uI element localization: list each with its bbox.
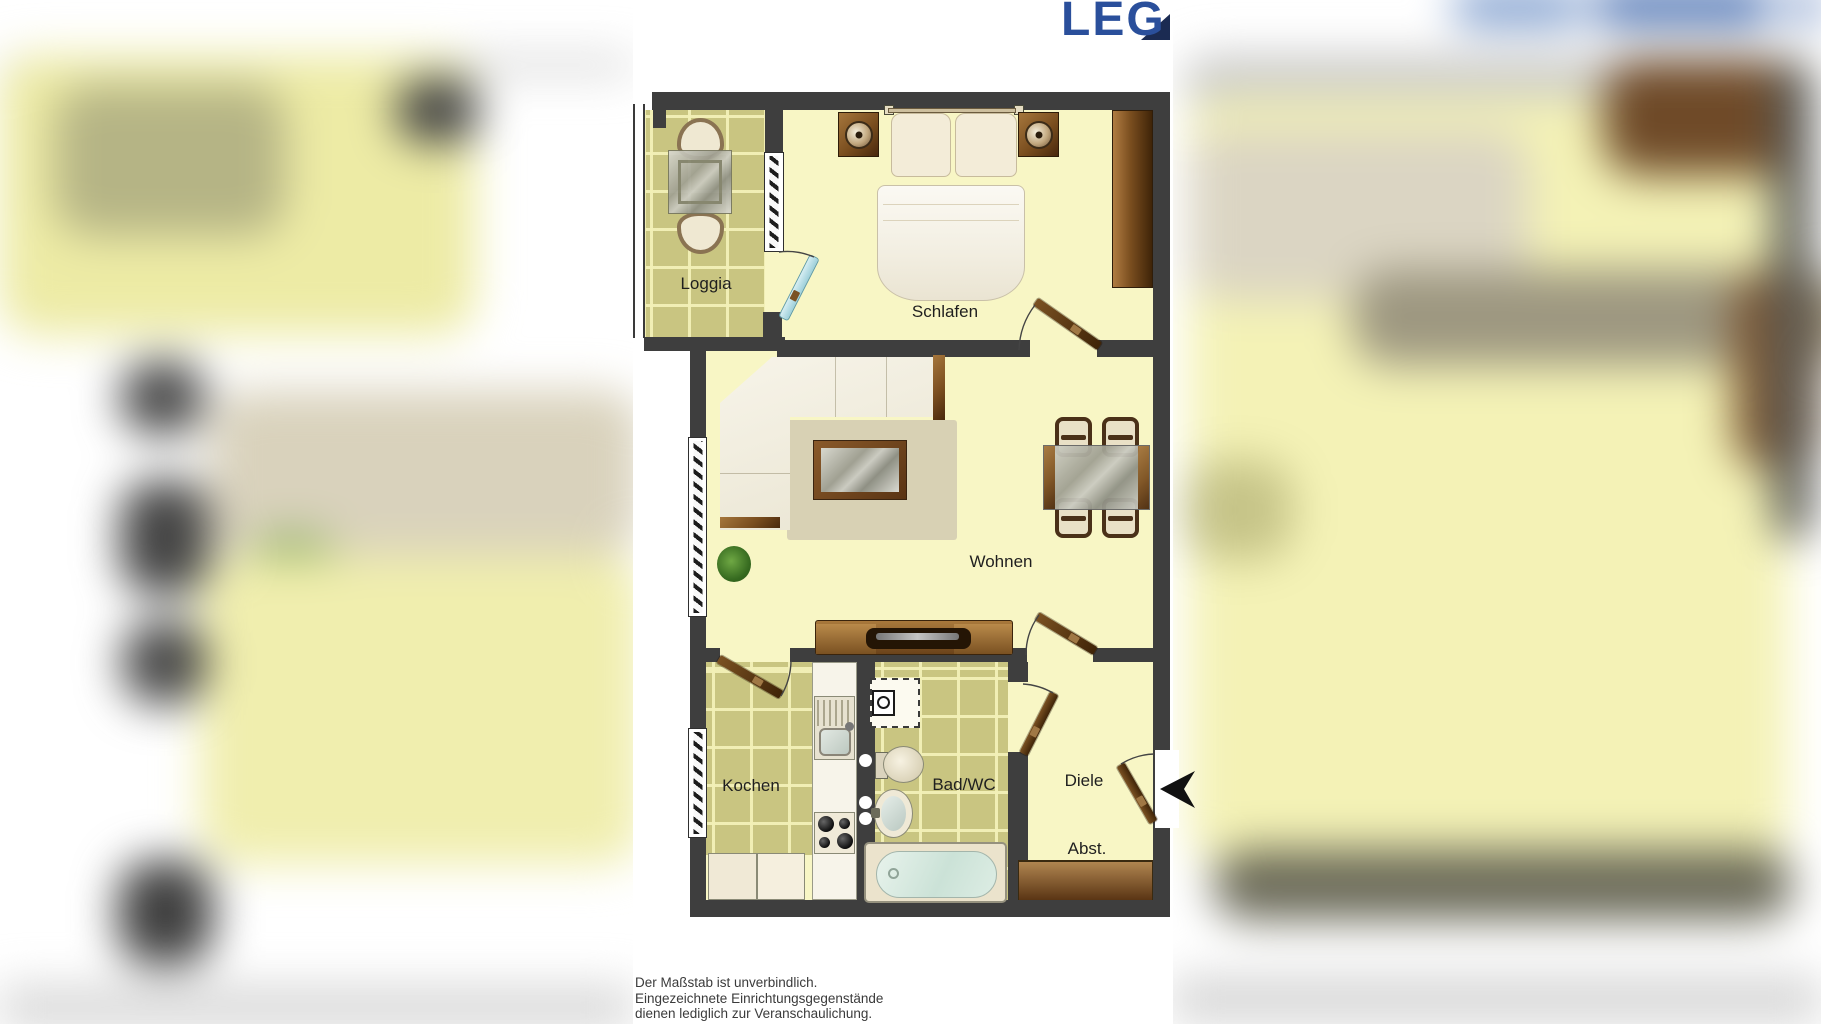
- sink-faucet-icon: [845, 722, 854, 731]
- washbasin-bowl-icon: [881, 796, 906, 831]
- wohnen-window: [688, 437, 707, 617]
- screenshot-stage: Loggia Schlafen Wohnen Kochen Bad/WC Die…: [0, 0, 1821, 1024]
- room-label-kochen: Kochen: [691, 776, 811, 796]
- window-glass-icon: [770, 156, 779, 248]
- kitchen-cabinet: [708, 853, 757, 900]
- sofa-seam: [835, 357, 836, 417]
- dining-table-end: [1044, 446, 1055, 509]
- wall-bath-diele-a: [1008, 662, 1028, 682]
- sofa-seam: [720, 473, 790, 474]
- loggia-window: [764, 152, 784, 252]
- pipe-dot-icon: [859, 796, 872, 809]
- pipe-dot-icon: [859, 754, 872, 767]
- kitchen-cabinet: [757, 853, 805, 900]
- lamp-center-dot-icon: [855, 131, 862, 138]
- plant-icon: [717, 546, 751, 582]
- blur-blob: [395, 78, 480, 143]
- storage-shelf: [1018, 860, 1153, 900]
- room-label-bad: Bad/WC: [904, 775, 1024, 795]
- wall-schlafen-wohnen-a: [777, 340, 1030, 357]
- balcony-table-inner-edge: [678, 160, 722, 204]
- blur-blob: [210, 390, 633, 555]
- blur-blob: [1183, 460, 1293, 560]
- blur-blob: [1593, 0, 1773, 24]
- blur-blob: [120, 360, 205, 435]
- loggia-railing: [633, 104, 645, 338]
- room-label-loggia: Loggia: [646, 274, 766, 294]
- disclaimer-line-3: dienen lediglich zur Veranschaulichung.: [635, 1006, 975, 1022]
- sink-bowl-icon: [819, 728, 851, 756]
- stove-burner-icon: [818, 816, 834, 832]
- blurred-right-margin: [1173, 0, 1821, 1024]
- disclaimer-line-1: Der Maßstab ist unverbindlich.: [635, 975, 975, 991]
- stove-burner-icon: [819, 837, 830, 848]
- tv-sideboard: [815, 620, 1013, 655]
- disclaimer-text: Der Maßstab ist unverbindlich. Eingezeic…: [635, 975, 975, 1022]
- blur-blob: [55, 85, 285, 235]
- blur-blob: [1213, 850, 1793, 920]
- blur-blob: [1453, 0, 1583, 24]
- dining-table: [1043, 445, 1150, 510]
- room-label-wohnen: Wohnen: [941, 552, 1061, 572]
- blur-blob: [120, 480, 210, 595]
- wall-loggia-separator-top: [765, 108, 783, 156]
- wall-top-left-stub: [653, 110, 666, 128]
- blur-blob: [1788, 0, 1821, 22]
- floor-plan: Loggia Schlafen Wohnen Kochen Bad/WC Die…: [633, 0, 1173, 1024]
- coffee-table: [813, 440, 907, 500]
- dining-table-end: [1138, 446, 1149, 509]
- tv-icon: [866, 628, 971, 649]
- stove-burner-icon: [837, 833, 853, 849]
- bathtub-drain-icon: [888, 868, 899, 879]
- blur-blob: [0, 985, 633, 1024]
- coffee-table-glass: [821, 448, 899, 492]
- sofa-armrest: [720, 517, 780, 528]
- wall-schlafen-wohnen-b: [1097, 340, 1153, 357]
- blurred-right-blobs: [1173, 0, 1821, 1024]
- window-glass-icon: [693, 441, 702, 613]
- tv-soundbar-icon: [876, 633, 959, 640]
- brand-logo: LEG: [1061, 0, 1191, 46]
- sofa-seam: [886, 357, 887, 417]
- blurred-left-margin: [0, 0, 633, 1024]
- stove-burner-icon: [839, 818, 850, 829]
- sofa-armrest: [933, 355, 945, 420]
- lamp-center-dot-icon: [1035, 131, 1042, 138]
- blur-blob: [1773, 60, 1813, 540]
- blur-blob: [118, 860, 213, 965]
- bed-blanket: [877, 185, 1025, 301]
- room-label-abstellraum: Abst.: [1027, 839, 1147, 859]
- blur-blob: [200, 555, 633, 865]
- blur-blob: [122, 620, 207, 705]
- bathtub: [864, 842, 1007, 903]
- washing-machine-drum-icon: [877, 696, 890, 709]
- blurred-left-blobs: [0, 0, 633, 1024]
- room-label-diele: Diele: [1024, 771, 1144, 791]
- nightstand: [838, 112, 879, 157]
- blanket-fold-line: [883, 204, 1019, 205]
- entrance-opening: [1155, 750, 1179, 828]
- disclaimer-line-2: Eingezeichnete Einrichtungsgegenstände: [635, 991, 975, 1007]
- washbasin-faucet-icon: [871, 808, 880, 818]
- bed-pillow: [955, 113, 1017, 177]
- room-label-schlafen: Schlafen: [885, 302, 1005, 322]
- balcony-table: [668, 150, 732, 214]
- blanket-fold-line: [883, 220, 1019, 221]
- wall-wohnen-bottom-c: [1093, 648, 1153, 662]
- wardrobe: [1112, 110, 1153, 288]
- bed-pillow: [891, 113, 951, 177]
- washing-machine-icon: [872, 690, 895, 716]
- nightstand: [1018, 112, 1059, 157]
- blur-blob: [1173, 975, 1821, 1024]
